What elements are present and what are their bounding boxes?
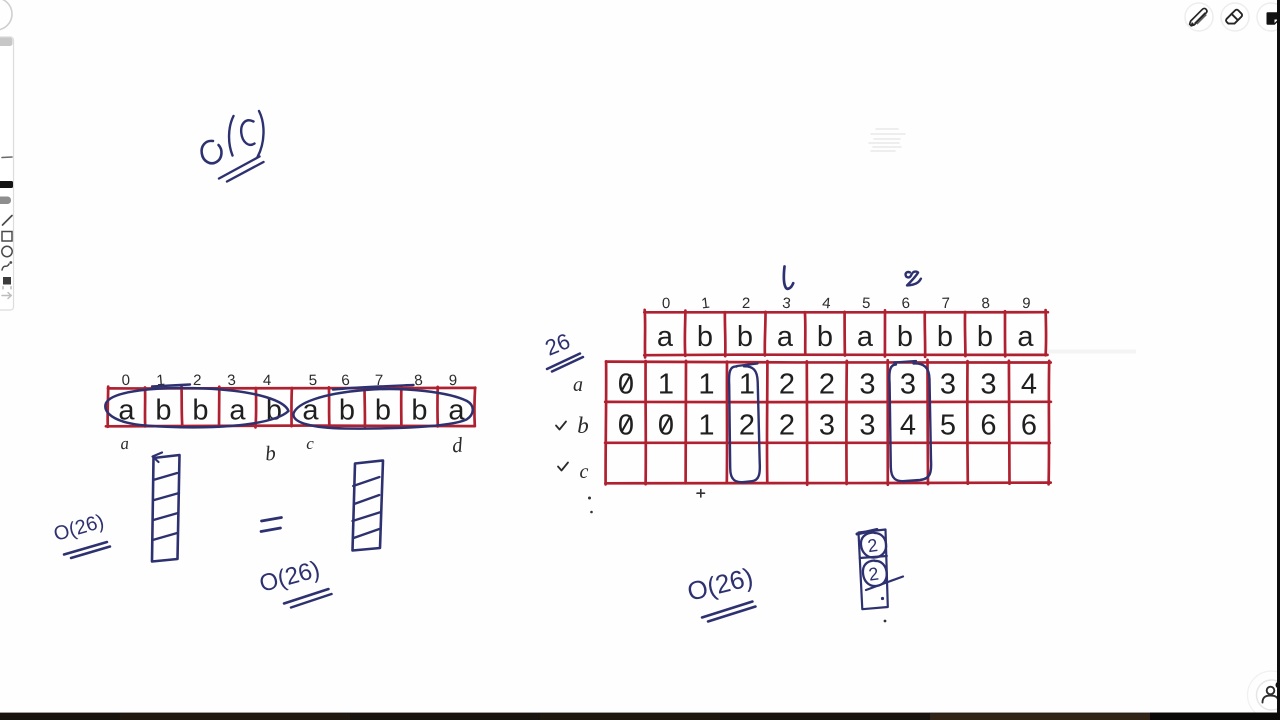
svg-text:5: 5 [862, 295, 871, 312]
svg-text:3: 3 [980, 369, 996, 401]
svg-text:b: b [937, 321, 953, 353]
svg-text:b: b [977, 321, 993, 353]
svg-text:6: 6 [901, 295, 910, 312]
svg-text:1: 1 [658, 369, 674, 401]
svg-text:4: 4 [900, 410, 916, 442]
svg-text:3: 3 [819, 410, 835, 442]
svg-text:b: b [375, 395, 391, 427]
svg-text:9: 9 [1022, 295, 1031, 313]
svg-text:8: 8 [981, 295, 991, 313]
svg-text:3: 3 [226, 372, 236, 390]
svg-text:b: b [577, 413, 589, 438]
svg-text:3: 3 [940, 369, 956, 401]
svg-text:b: b [155, 395, 171, 427]
svg-text:0: 0 [662, 295, 671, 312]
svg-text:4: 4 [263, 372, 271, 389]
svg-text:a: a [1017, 321, 1034, 353]
svg-text:7: 7 [941, 295, 950, 312]
svg-text:b: b [817, 321, 833, 353]
svg-text:4: 4 [1021, 369, 1037, 401]
svg-text:3: 3 [859, 410, 875, 442]
svg-text:b: b [897, 321, 913, 353]
svg-text:b: b [737, 321, 753, 353]
svg-text:b: b [339, 395, 355, 427]
svg-text:5: 5 [940, 410, 956, 442]
svg-text:0: 0 [121, 372, 130, 389]
svg-text:6: 6 [1021, 410, 1037, 442]
svg-text:a: a [229, 395, 246, 427]
svg-text:2: 2 [819, 369, 835, 401]
svg-text:2: 2 [742, 295, 750, 312]
svg-text:c: c [580, 461, 589, 483]
svg-text:5: 5 [308, 372, 317, 389]
svg-text:b: b [192, 395, 208, 427]
svg-text:1: 1 [739, 369, 755, 401]
svg-text:a: a [857, 321, 874, 353]
svg-text:b: b [264, 441, 277, 466]
svg-text:2: 2 [779, 410, 795, 442]
svg-text:c: c [306, 434, 314, 453]
svg-text:3: 3 [900, 369, 916, 401]
svg-text:6: 6 [980, 410, 996, 442]
svg-text:1: 1 [698, 369, 714, 401]
svg-text:4: 4 [821, 295, 831, 313]
svg-text:2: 2 [739, 410, 755, 442]
svg-text:2: 2 [193, 372, 202, 389]
svg-text:3: 3 [859, 369, 875, 401]
svg-text:9: 9 [449, 372, 458, 389]
svg-text:a: a [777, 321, 794, 353]
svg-text:b: b [411, 395, 427, 427]
svg-text:a: a [657, 321, 674, 353]
svg-text:b: b [697, 321, 713, 353]
svg-text:a: a [573, 374, 583, 396]
svg-text:1: 1 [698, 410, 714, 442]
svg-text:2: 2 [779, 369, 795, 401]
svg-text:a: a [120, 434, 130, 454]
